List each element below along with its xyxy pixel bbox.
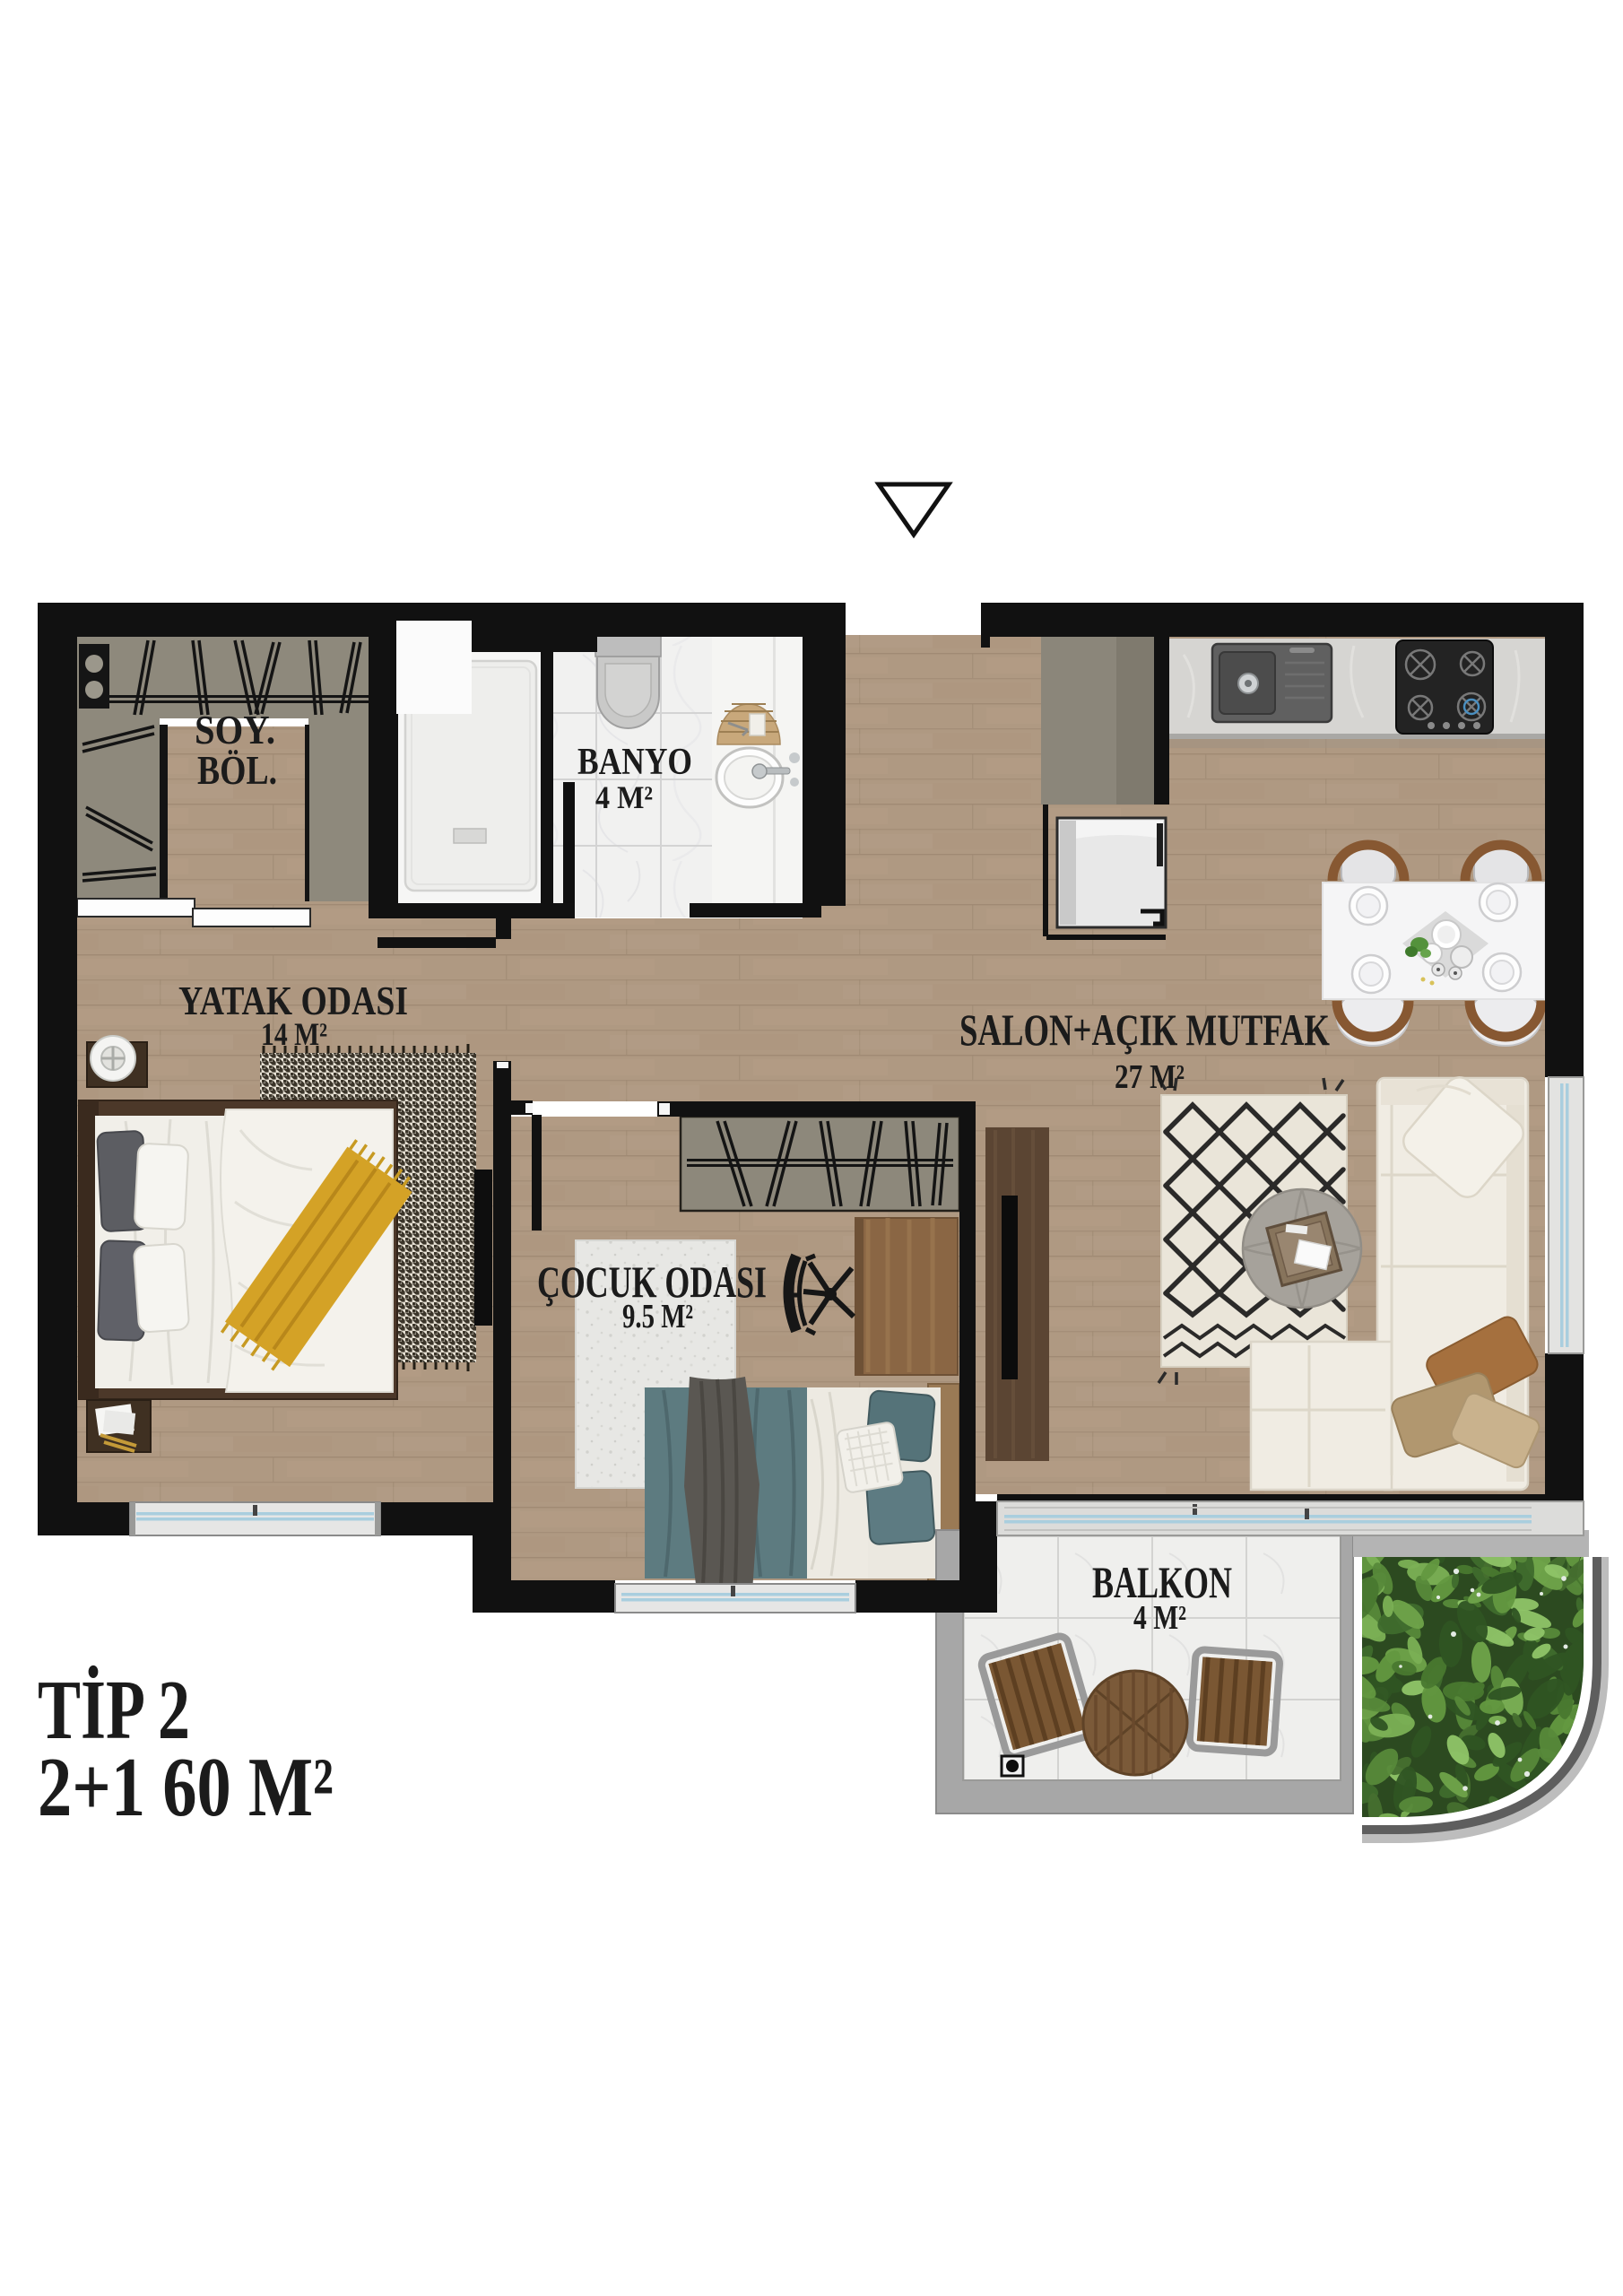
svg-text:2+1 60 M²: 2+1 60 M² xyxy=(38,1741,334,1834)
svg-text:SOY.: SOY. xyxy=(195,707,275,752)
svg-text:SALON+AÇIK MUTFAK: SALON+AÇIK MUTFAK xyxy=(959,1004,1330,1055)
svg-text:4 M²: 4 M² xyxy=(1133,1599,1186,1637)
svg-text:14 M²: 14 M² xyxy=(261,1016,327,1052)
svg-text:BANYO: BANYO xyxy=(577,742,692,783)
svg-text:9.5 M²: 9.5 M² xyxy=(622,1298,693,1335)
svg-text:27 M²: 27 M² xyxy=(1115,1058,1185,1096)
svg-text:BÖL.: BÖL. xyxy=(197,747,277,793)
svg-text:4 M²: 4 M² xyxy=(595,779,653,815)
